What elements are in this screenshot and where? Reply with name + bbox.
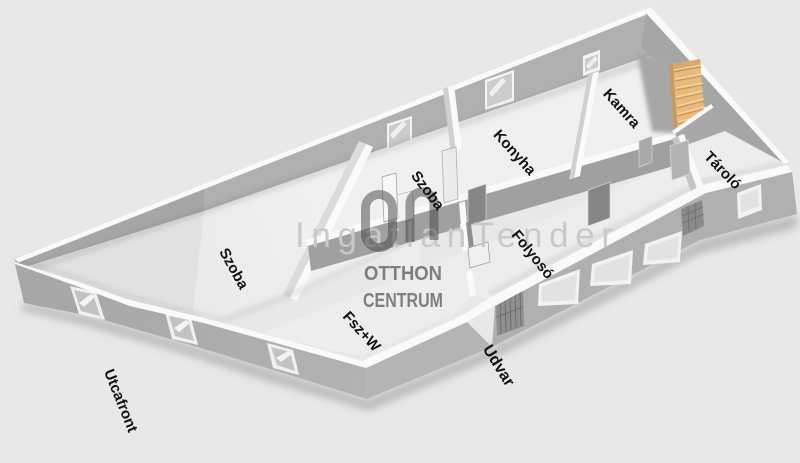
svg-text:OTTHON: OTTHON bbox=[364, 263, 442, 285]
svg-text:CENTRUM: CENTRUM bbox=[363, 290, 443, 312]
svg-text:IngatlanTender: IngatlanTender bbox=[295, 216, 613, 255]
